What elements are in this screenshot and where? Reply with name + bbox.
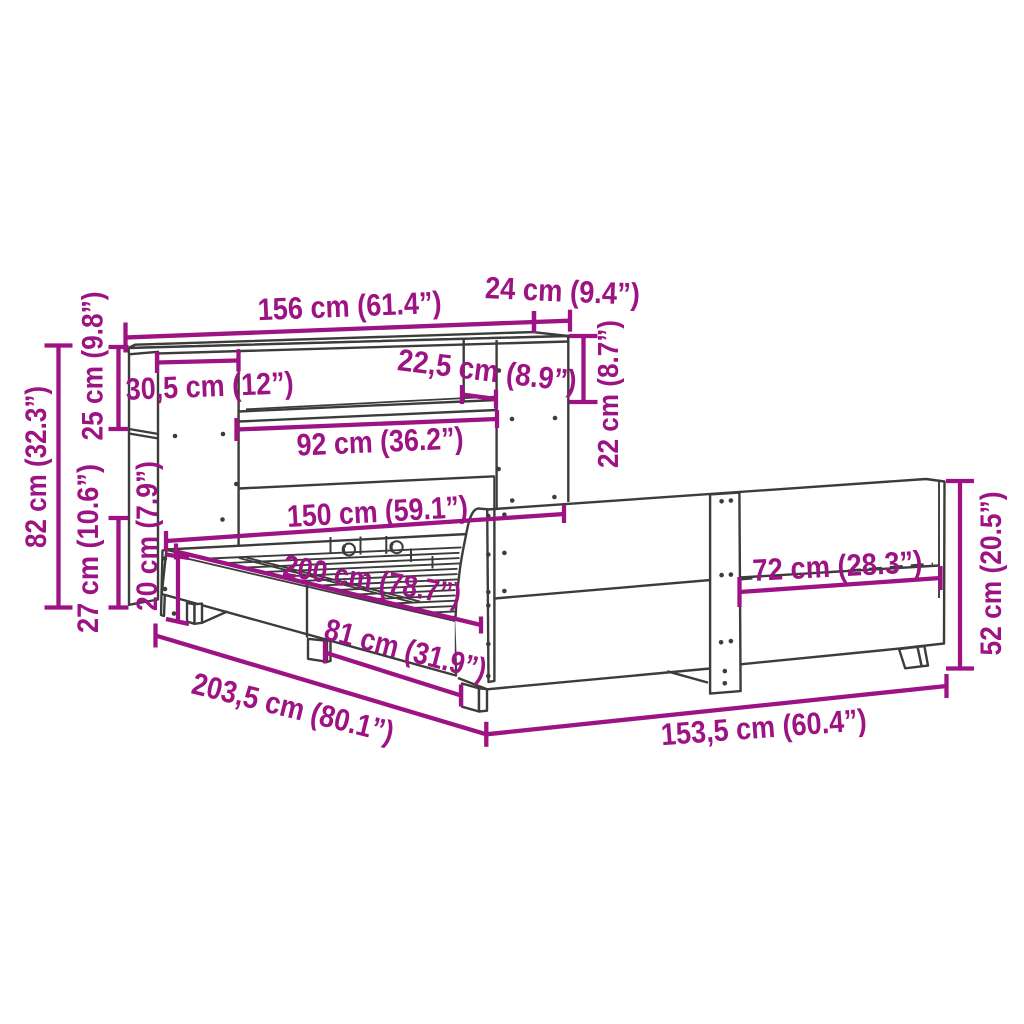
svg-text:20 cm (7.9”): 20 cm (7.9”) — [131, 461, 164, 611]
svg-text:27 cm (10.6”): 27 cm (10.6”) — [72, 464, 105, 633]
svg-text:24 cm (9.4”): 24 cm (9.4”) — [484, 270, 640, 312]
svg-text:25 cm (9.8”): 25 cm (9.8”) — [77, 292, 110, 441]
svg-text:30,5 cm (12”): 30,5 cm (12”) — [125, 365, 294, 407]
svg-text:156 cm (61.4”): 156 cm (61.4”) — [257, 285, 442, 327]
svg-text:52 cm (20.5”): 52 cm (20.5”) — [975, 492, 1008, 656]
svg-text:92 cm (36.2”): 92 cm (36.2”) — [296, 420, 464, 462]
svg-text:82 cm (32.3”): 82 cm (32.3”) — [20, 386, 53, 548]
svg-text:22 cm (8.7”): 22 cm (8.7”) — [593, 320, 625, 468]
